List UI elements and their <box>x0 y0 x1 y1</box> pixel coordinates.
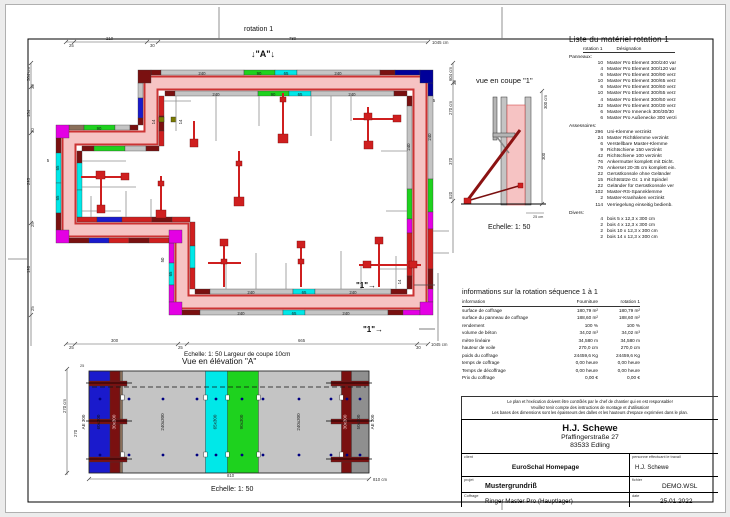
svg-text:240: 240 <box>247 290 255 295</box>
svg-text:25: 25 <box>69 345 74 350</box>
svg-text:810 cm: 810 cm <box>373 477 388 482</box>
svg-text:25: 25 <box>178 345 183 350</box>
corner-element <box>56 230 69 243</box>
info-row-rotation: 100 % <box>598 322 640 330</box>
svg-text:584 cm: 584 cm <box>26 66 31 81</box>
svg-text:25: 25 <box>80 364 84 368</box>
info-row-label: temps de coffrage <box>462 359 552 367</box>
svg-text:240x300: 240x300 <box>160 413 165 431</box>
svg-text:30: 30 <box>30 128 35 133</box>
svg-text:50x300: 50x300 <box>356 414 361 429</box>
svg-text:25: 25 <box>69 43 74 48</box>
svg-text:780: 780 <box>289 36 297 41</box>
svg-text:65x300: 65x300 <box>213 414 218 429</box>
svg-text:198: 198 <box>26 265 31 273</box>
svg-text:370: 370 <box>448 157 453 165</box>
svg-text:240: 240 <box>349 290 357 295</box>
props <box>81 93 421 287</box>
info-row-fourniture: 0,00 € <box>552 374 598 382</box>
info-row-fourniture: 180,79 m² <box>552 307 598 315</box>
material-label: Verriegelung einseitig bedienb. <box>607 203 717 209</box>
info-row: volume de béton 34,02 m³ 34,02 m³ <box>462 329 640 337</box>
date-label: date <box>632 494 639 498</box>
plan-view: 240 90 65 240 240 90 65 240 240 65 240 2… <box>47 49 449 341</box>
info-row: surface du panneau de coffrage 188,60 m²… <box>462 314 640 322</box>
material-list-title: Liste du matériel rotation 1 <box>569 35 717 44</box>
info-row: mètre linéaire 34,580 m 34,580 m <box>462 337 640 345</box>
bracket-ledge <box>493 133 515 137</box>
corner-element <box>138 70 151 83</box>
material-label: Master Pro Außenecke 300 verzi <box>607 116 717 122</box>
svg-text:5: 5 <box>433 98 436 103</box>
rotation-info-table: informations sur la rotation séquence 1 … <box>462 287 640 382</box>
svg-text:300: 300 <box>541 152 546 160</box>
info-row-rotation: 188,60 m² <box>598 314 640 322</box>
svg-text:300: 300 <box>111 338 119 343</box>
marker-a: ↓"A"↓ <box>251 49 275 59</box>
warning-line: Les bases des dimensions sont les épaiss… <box>462 410 718 416</box>
info-row: rendement 100 % 100 % <box>462 322 640 330</box>
title-block: H.J. Schewe Pfaffingerstraße 27 83533 Ed… <box>461 419 718 507</box>
svg-text:270: 270 <box>73 429 78 437</box>
company-address2: 83533 Edling <box>462 442 718 450</box>
material-row: 6 Master Pro Außenecke 300 verzi <box>569 116 717 122</box>
material-list-col-designation: Désignation <box>617 46 642 51</box>
project-label: projet <box>464 478 474 482</box>
panel-labels: 240 90 65 240 240 90 65 240 240 65 240 2… <box>47 71 436 316</box>
svg-text:25: 25 <box>30 222 35 227</box>
info-row-label: Temps de décoffrage <box>462 367 552 375</box>
info-row: poids du coffrage 24459,6 Kg 24459,6 Kg <box>462 352 640 360</box>
svg-text:65: 65 <box>55 165 60 170</box>
svg-text:604 cm: 604 cm <box>448 66 453 81</box>
svg-text:65: 65 <box>292 311 297 316</box>
material-row: 114 Verriegelung einseitig bedienb. <box>569 203 717 209</box>
info-row-rotation: 270,0 cm <box>598 344 640 352</box>
svg-text:AE 300: AE 300 <box>370 414 375 429</box>
svg-text:50: 50 <box>160 257 165 262</box>
info-row-label: mètre linéaire <box>462 337 552 345</box>
info-row-fourniture: 100 % <box>552 322 598 330</box>
svg-text:665: 665 <box>298 338 306 343</box>
company-block: H.J. Schewe Pfaffingerstraße 27 83533 Ed… <box>462 420 718 453</box>
svg-text:30x300: 30x300 <box>112 414 117 429</box>
marker-1: "1"→ <box>356 281 376 290</box>
elevation-panels <box>89 371 369 473</box>
title-block-grid: client EuroSchal Homepage personne effec… <box>462 453 718 507</box>
info-table-title: informations sur la rotation séquence 1 … <box>462 287 640 296</box>
svg-text:240: 240 <box>342 311 350 316</box>
material-list-header: rotation 1 Désignation <box>583 46 675 53</box>
svg-text:30: 30 <box>150 43 155 48</box>
section-view: vue en coupe "1" 300 cm 300 25 cm Echell… <box>461 76 548 231</box>
corner-element <box>169 230 182 243</box>
svg-text:90: 90 <box>271 92 276 97</box>
info-row: Temps de décoffrage 0,00 heure 0,00 heur… <box>462 367 640 375</box>
svg-text:25: 25 <box>30 306 35 311</box>
corner-element <box>169 302 182 315</box>
svg-text:240: 240 <box>237 311 245 316</box>
material-qty: 114 <box>569 203 607 209</box>
svg-text:1045 cm: 1045 cm <box>431 342 448 347</box>
svg-text:210: 210 <box>106 36 114 41</box>
material-list-col-qty: rotation 1 <box>583 46 603 51</box>
formwork-panels <box>56 70 433 315</box>
svg-text:65: 65 <box>284 71 289 76</box>
info-row: hauteur de voile 270,0 cm 270,0 cm <box>462 344 640 352</box>
info-row-rotation: 0,00 heure <box>598 367 640 375</box>
info-row: Prix du coffrage 0,00 € 0,00 € <box>462 374 640 382</box>
warning-text: Le plan et l'exécution doivent être cont… <box>461 396 718 421</box>
section-title: vue en coupe "1" <box>476 76 533 85</box>
client-label: client <box>464 455 473 459</box>
info-row-rotation: 180,79 m² <box>598 307 640 315</box>
svg-text:5: 5 <box>47 158 50 163</box>
info-row-fourniture: 34,580 m <box>552 337 598 345</box>
material-label: bois 14 x 12,3 x 300 cm <box>607 235 717 241</box>
corner-element <box>420 70 433 83</box>
info-col-fourniture: Fourniture <box>552 299 598 306</box>
info-row: temps de coffrage 0,00 heure 0,00 heure <box>462 359 640 367</box>
drawing-sheet: rotation 1 <box>5 4 726 513</box>
company-name: H.J. Schewe <box>462 420 718 434</box>
material-list: Liste du matériel rotation 1 rotation 1 … <box>569 35 717 241</box>
sheet-rotation-label: rotation 1 <box>244 26 273 33</box>
info-row: surface de coffrage 180,79 m² 180,79 m² <box>462 307 640 315</box>
svg-text:240: 240 <box>198 71 206 76</box>
svg-text:240: 240 <box>406 143 411 151</box>
client-value: EuroSchal Homepage <box>462 460 629 471</box>
info-row-label: poids du coffrage <box>462 352 552 360</box>
svg-text:30: 30 <box>452 80 457 85</box>
corner-element <box>56 125 69 138</box>
svg-text:270 cm: 270 cm <box>448 100 453 115</box>
svg-text:30: 30 <box>416 345 421 350</box>
svg-text:620: 620 <box>448 191 453 199</box>
svg-text:240: 240 <box>348 92 356 97</box>
svg-text:90: 90 <box>97 126 102 131</box>
elevation-title: Vue en élévation "A" <box>182 357 256 366</box>
svg-text:60x300: 60x300 <box>96 414 101 429</box>
info-row-label: surface du panneau de coffrage <box>462 314 552 322</box>
svg-text:1045 cm: 1045 cm <box>432 40 449 45</box>
company-address1: Pfaffingerstraße 27 <box>462 434 718 442</box>
material-qty: 6 <box>569 116 607 122</box>
info-row-rotation: 34,02 m³ <box>598 329 640 337</box>
info-row-fourniture: 24459,6 Kg <box>552 352 598 360</box>
material-qty: 2 <box>569 235 607 241</box>
svg-text:AE 300: AE 300 <box>81 414 86 429</box>
svg-text:240: 240 <box>212 92 220 97</box>
info-col-label: information <box>462 299 552 306</box>
info-row-fourniture: 0,00 heure <box>552 359 598 367</box>
info-row-label: hauteur de voile <box>462 344 552 352</box>
file-label: fichier <box>632 478 642 482</box>
info-row-label: rendement <box>462 322 552 330</box>
info-row-fourniture: 188,60 m² <box>552 314 598 322</box>
info-row-rotation: 34,580 m <box>598 337 640 345</box>
info-row-label: volume de béton <box>462 329 552 337</box>
info-row-fourniture: 270,0 cm <box>552 344 598 352</box>
svg-text:30x300: 30x300 <box>343 414 348 429</box>
svg-text:30: 30 <box>30 84 35 89</box>
svg-text:240x300: 240x300 <box>296 413 301 431</box>
svg-text:65: 65 <box>302 290 307 295</box>
svg-text:14: 14 <box>178 119 183 124</box>
svg-text:240: 240 <box>334 71 342 76</box>
svg-text:90: 90 <box>257 71 262 76</box>
elevation-view: Echelle: 1: 50 Largeur de coupe 10cm Vue… <box>62 351 388 493</box>
formwork-label: Coffrage <box>464 494 479 498</box>
info-row-rotation: 24459,6 Kg <box>598 352 640 360</box>
elevation-scale: Echelle: 1: 50 <box>211 486 254 493</box>
svg-text:14: 14 <box>151 119 156 124</box>
svg-text:134: 134 <box>26 109 31 117</box>
info-row-label: surface de coffrage <box>462 307 552 315</box>
info-table-rows: surface de coffrage 180,79 m² 180,79 m² … <box>462 307 640 382</box>
svg-text:65: 65 <box>298 92 303 97</box>
material-list-rows: Panneaux: 10 Master Pro Element 300/240 … <box>569 55 717 241</box>
info-col-rotation: rotation 1 <box>598 299 640 306</box>
svg-text:810: 810 <box>227 473 235 478</box>
corner-element <box>420 302 433 315</box>
svg-text:14: 14 <box>397 279 402 284</box>
worker-value: H.J. Schewe <box>630 459 669 471</box>
marker-1: "1"→ <box>363 325 383 334</box>
svg-text:295: 295 <box>26 177 31 185</box>
svg-text:300 cm: 300 cm <box>543 94 548 109</box>
formwork-value: Ringer Master Pro (Hauptlager) <box>462 495 573 505</box>
section-scale: Echelle: 1: 50 <box>488 224 531 231</box>
svg-text:90x300: 90x300 <box>239 414 244 429</box>
svg-text:240: 240 <box>427 133 432 141</box>
svg-text:270 cm: 270 cm <box>62 398 67 413</box>
worker-label: personne effectuant le travail <box>632 455 681 459</box>
material-row: 2 bois 14 x 12,3 x 300 cm <box>569 235 717 241</box>
info-table-header: information Fourniture rotation 1 <box>462 299 640 307</box>
info-row-fourniture: 34,02 m³ <box>552 329 598 337</box>
info-row-rotation: 0,00 heure <box>598 359 640 367</box>
svg-text:65: 65 <box>168 271 173 276</box>
svg-text:25 cm: 25 cm <box>533 215 543 219</box>
info-row-label: Prix du coffrage <box>462 374 552 382</box>
svg-text:65: 65 <box>55 195 60 200</box>
info-row-fourniture: 0,00 heure <box>552 367 598 375</box>
info-row-rotation: 0,00 € <box>598 374 640 382</box>
